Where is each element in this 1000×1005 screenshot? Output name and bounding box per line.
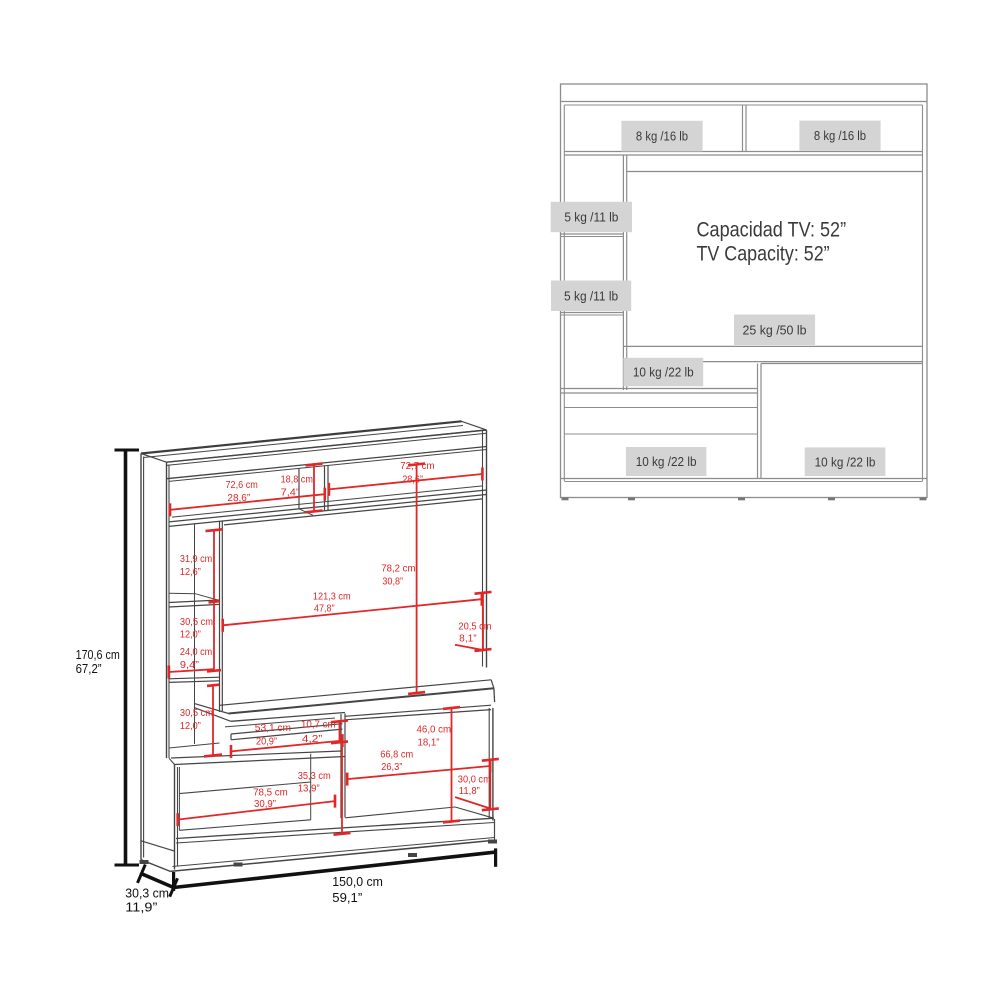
svg-text:12,0”: 12,0” (180, 630, 201, 641)
svg-text:11,9”: 11,9” (125, 900, 157, 914)
svg-text:35,3 cm: 35,3 cm (298, 771, 331, 782)
svg-text:150,0 cm: 150,0 cm (332, 875, 383, 889)
svg-text:8 kg /16 lb: 8 kg /16 lb (814, 128, 866, 143)
svg-text:67,2”: 67,2” (76, 662, 102, 676)
svg-text:78,2 cm: 78,2 cm (381, 564, 415, 575)
svg-text:72,6 cm: 72,6 cm (226, 480, 258, 491)
svg-text:10 kg /22 lb: 10 kg /22 lb (633, 365, 694, 380)
svg-text:9,4”: 9,4” (180, 660, 199, 671)
svg-text:28,6”: 28,6” (227, 493, 250, 504)
svg-text:30,3 cm: 30,3 cm (125, 887, 169, 901)
svg-text:18,1”: 18,1” (418, 738, 440, 749)
svg-text:Capacidad TV: 52”: Capacidad TV: 52” (697, 217, 847, 241)
svg-text:46,0 cm: 46,0 cm (417, 725, 452, 736)
svg-text:30,9”: 30,9” (254, 799, 276, 810)
svg-text:13,9”: 13,9” (298, 784, 320, 795)
svg-text:59,1”: 59,1” (332, 891, 362, 905)
svg-text:121,3 cm: 121,3 cm (313, 591, 351, 602)
svg-text:18,8 cm: 18,8 cm (281, 474, 313, 485)
svg-text:10 kg /22 lb: 10 kg /22 lb (815, 454, 876, 469)
svg-text:10 kg /22 lb: 10 kg /22 lb (636, 454, 697, 469)
svg-text:11,8”: 11,8” (459, 786, 480, 797)
svg-text:170,6 cm: 170,6 cm (76, 648, 120, 662)
svg-text:5 kg /11 lb: 5 kg /11 lb (564, 210, 618, 225)
svg-text:12,6”: 12,6” (180, 567, 201, 578)
svg-text:20,9”: 20,9” (256, 736, 277, 747)
svg-text:12,0”: 12,0” (180, 721, 201, 732)
svg-text:30,0 cm: 30,0 cm (458, 774, 491, 785)
svg-text:66,8 cm: 66,8 cm (380, 749, 413, 760)
svg-text:25 kg /50 lb: 25 kg /50 lb (743, 322, 807, 337)
svg-text:47,8”: 47,8” (314, 604, 335, 615)
svg-text:8,1”: 8,1” (459, 633, 477, 644)
svg-text:10,7 cm: 10,7 cm (301, 720, 336, 731)
svg-text:30,8”: 30,8” (382, 576, 403, 587)
svg-text:26,3”: 26,3” (381, 762, 402, 773)
svg-text:TV Capacity: 52”: TV Capacity: 52” (697, 242, 830, 266)
svg-text:24,0 cm: 24,0 cm (180, 647, 212, 658)
svg-text:8 kg /16 lb: 8 kg /16 lb (636, 129, 688, 144)
svg-text:5 kg /11 lb: 5 kg /11 lb (564, 288, 618, 303)
svg-text:31,9 cm: 31,9 cm (180, 554, 212, 565)
svg-text:30,5 cm: 30,5 cm (180, 708, 213, 719)
svg-text:4,2”: 4,2” (302, 734, 323, 745)
svg-text:30,5 cm: 30,5 cm (180, 617, 213, 628)
svg-text:53,1 cm: 53,1 cm (255, 723, 291, 734)
svg-text:78,5 cm: 78,5 cm (253, 787, 288, 798)
svg-text:20,5 cm: 20,5 cm (458, 622, 491, 633)
svg-text:28,6”: 28,6” (402, 474, 423, 485)
svg-text:7,4”: 7,4” (281, 488, 300, 499)
